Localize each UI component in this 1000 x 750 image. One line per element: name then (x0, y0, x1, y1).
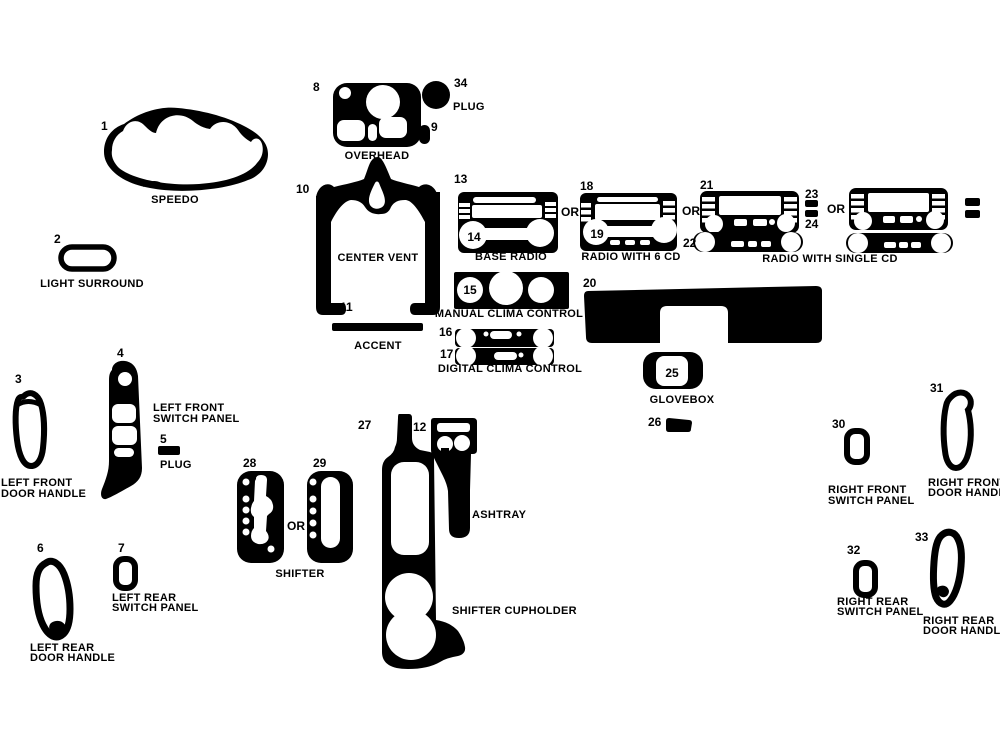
shifter-cupholder-number: 27 (358, 418, 372, 432)
shifter-number-28: 28 (243, 456, 257, 470)
radio-single-cd-number-24: 24 (805, 217, 819, 231)
glovebox-number: 25 (665, 366, 679, 380)
plug-9-number: 9 (431, 120, 438, 134)
digital-clima-control-number-17: 17 (440, 347, 454, 361)
radio-single-cd-alt-shape (849, 188, 948, 230)
right-rear-switch-panel-label-2: SWITCH PANEL (837, 606, 924, 618)
base-radio-number: 13 (454, 172, 468, 186)
dash-panel-shape (584, 286, 822, 343)
left-rear-door-handle-label-2: DOOR HANDLE (30, 652, 115, 664)
plug-34-label: PLUG (453, 101, 485, 113)
right-front-door-handle-number: 31 (930, 381, 944, 395)
radio-6cd-label: RADIO WITH 6 CD (581, 251, 680, 263)
base-radio-number-2: 14 (467, 230, 481, 244)
accent-number: 11 (340, 300, 353, 314)
left-rear-switch-panel-label-2: SWITCH PANEL (112, 602, 199, 614)
ashtray-label: ASHTRAY (472, 509, 527, 521)
shifter-plate-29-shape (307, 471, 353, 563)
light-surround-shape (61, 247, 114, 269)
right-rear-switch-panel-shape (856, 563, 875, 595)
plug-5-number: 5 (160, 432, 167, 446)
radio-single-cd-number-22: 22 (683, 236, 697, 250)
radio-single-cd-shape (700, 191, 799, 233)
or-label-2: OR (682, 204, 700, 218)
manual-clima-control-number: 15 (463, 283, 477, 297)
radio-single-cd-number-23: 23 (805, 187, 819, 201)
shifter-number-29: 29 (313, 456, 327, 470)
overhead-shape (333, 83, 421, 147)
radio-single-cd-alt-lower-trim-shape (846, 233, 953, 253)
center-vent-number: 10 (296, 182, 310, 196)
left-front-switch-panel-label-2: SWITCH PANEL (153, 413, 240, 425)
light-surround-label: LIGHT SURROUND (40, 278, 144, 290)
right-rear-door-handle-number: 33 (915, 530, 929, 544)
manual-clima-control-label: MANUAL CLIMA CONTROL (435, 308, 583, 320)
left-rear-door-handle-number: 6 (37, 541, 44, 555)
center-vent-shape (316, 157, 440, 315)
radio-6cd-shape (580, 193, 677, 251)
right-front-switch-panel-label-2: SWITCH PANEL (828, 495, 915, 507)
left-rear-switch-panel-shape (116, 559, 135, 588)
right-front-switch-panel-number: 30 (832, 417, 846, 431)
radio-single-cd-label: RADIO WITH SINGLE CD (762, 253, 898, 265)
shifter-label: SHIFTER (275, 568, 324, 580)
left-front-switch-panel-number: 4 (117, 346, 124, 360)
or-label-1: OR (561, 205, 579, 219)
diagram-canvas: 1 SPEEDO 2 LIGHT SURROUND 3 LEFT FRONT D… (0, 0, 1000, 750)
speedo-shape (104, 108, 268, 191)
trim-26-shape (666, 418, 692, 432)
right-front-switch-panel-shape (847, 431, 867, 462)
radio-single-cd-side-strips-shape (805, 200, 818, 217)
accent-label: ACCENT (354, 340, 402, 352)
plug-34-shape (422, 81, 450, 109)
right-rear-door-handle-label-2: DOOR HANDLE (923, 625, 1000, 637)
radio-6cd-number-2: 19 (590, 227, 604, 241)
radio-single-cd-alt-side-strips-shape (965, 198, 980, 218)
dash-kit-diagram: 1 SPEEDO 2 LIGHT SURROUND 3 LEFT FRONT D… (0, 0, 1000, 750)
accent-shape (332, 323, 423, 331)
digital-clima-control-number-16: 16 (439, 325, 453, 339)
speedo-label: SPEEDO (151, 194, 199, 206)
radio-6cd-number: 18 (580, 179, 594, 193)
plug-34-number: 34 (454, 76, 468, 90)
base-radio-label: BASE RADIO (475, 251, 547, 263)
glovebox-label: GLOVEBOX (650, 394, 715, 406)
digital-clima-control-label: DIGITAL CLIMA CONTROL (438, 363, 582, 375)
radio-single-cd-number-21: 21 (700, 178, 714, 192)
left-front-door-handle-number: 3 (15, 372, 22, 386)
radio-single-cd-lower-trim-shape (693, 232, 803, 252)
center-vent-label: CENTER VENT (338, 252, 419, 264)
left-front-switch-panel-shape (101, 361, 142, 499)
plug-5-shape (158, 446, 180, 455)
or-label-3: OR (827, 202, 845, 216)
ashtray-number: 12 (413, 420, 427, 434)
shifter-plate-28-shape (237, 471, 284, 563)
overhead-number: 8 (313, 80, 320, 94)
left-front-door-handle-label-2: DOOR HANDLE (1, 488, 86, 500)
or-label-4: OR (287, 519, 305, 533)
right-rear-switch-panel-number: 32 (847, 543, 861, 557)
plug-9-shape (419, 125, 430, 144)
left-rear-door-handle-shape (36, 561, 70, 637)
right-front-door-handle-shape (944, 393, 971, 469)
plug-5-label: PLUG (160, 459, 192, 471)
right-rear-door-handle-shape (933, 532, 961, 604)
left-front-door-handle-shape (16, 393, 44, 466)
trim-26-number: 26 (648, 415, 662, 429)
speedo-number: 1 (101, 119, 108, 133)
ashtray-shape (431, 418, 477, 538)
shifter-cupholder-label: SHIFTER CUPHOLDER (452, 605, 577, 617)
dash-panel-number: 20 (583, 276, 597, 290)
light-surround-number: 2 (54, 232, 61, 246)
right-front-door-handle-label-2: DOOR HANDLE (928, 487, 1000, 499)
left-rear-switch-panel-number: 7 (118, 541, 125, 555)
digital-clima-control-shape (455, 328, 554, 366)
